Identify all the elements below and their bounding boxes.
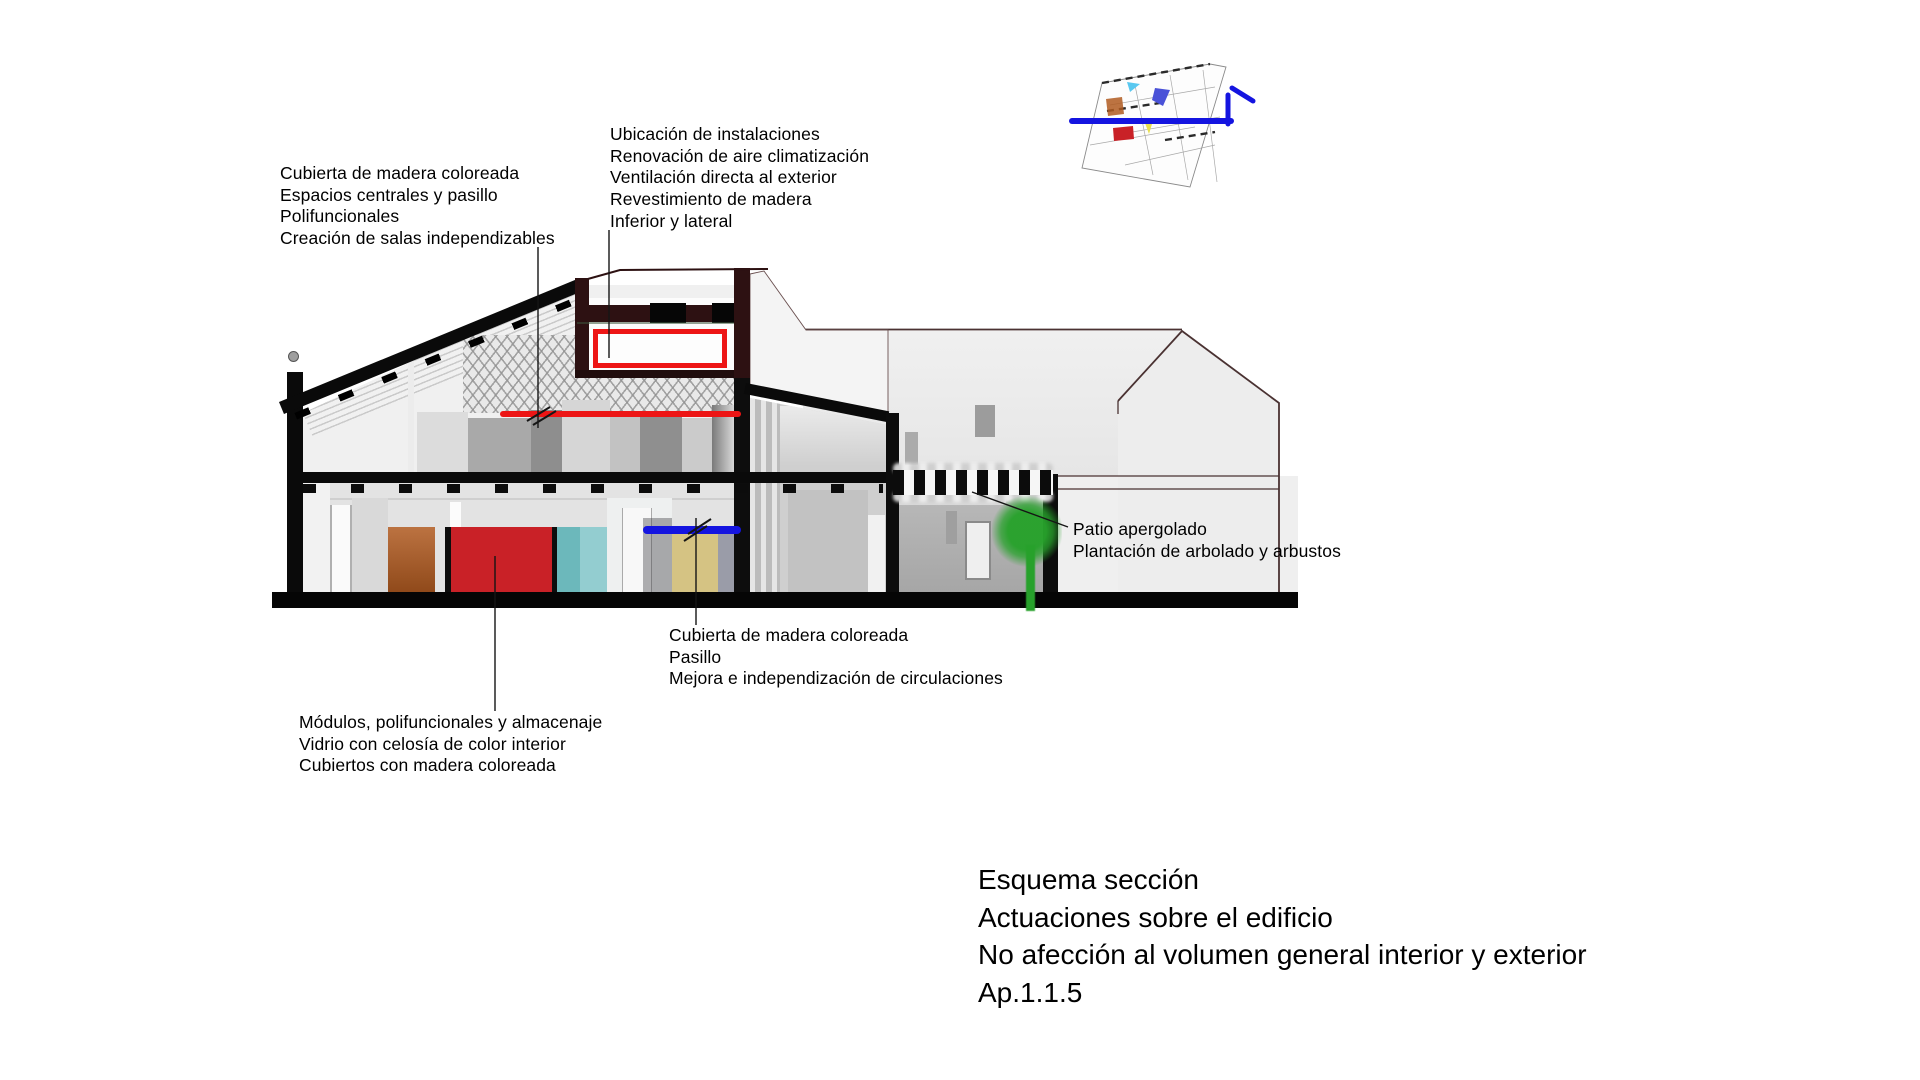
floor-slab <box>287 472 899 483</box>
patio-window <box>965 521 991 580</box>
joist-dashes <box>303 484 883 493</box>
module-teal-light <box>580 527 607 592</box>
clerestory-left-post <box>575 278 589 378</box>
door <box>450 502 461 528</box>
annotation-line: Ventilación directa al exterior <box>610 167 869 189</box>
wall-panel <box>352 498 388 592</box>
annotation-line: Módulos, polifuncionales y almacenaje <box>299 712 602 734</box>
finial <box>288 351 299 362</box>
module-red <box>451 527 552 592</box>
clerestory-sill <box>575 370 748 378</box>
door <box>330 505 352 592</box>
mid-wing-wall <box>886 413 899 600</box>
section-drawing: Cubierta de madera coloreada Espacios ce… <box>0 0 1920 1080</box>
pergola-band <box>893 470 1053 495</box>
title-line: Esquema sección <box>978 861 1587 899</box>
rear-window <box>975 405 995 437</box>
title-line: Ap.1.1.5 <box>978 974 1587 1012</box>
annotation-line: Polifuncionales <box>280 206 555 228</box>
annotation-line: Creación de salas independizables <box>280 228 555 250</box>
title-line: No afección al volumen general interior … <box>978 936 1587 974</box>
title-line: Actuaciones sobre el edificio <box>978 899 1587 937</box>
wall-panel <box>303 483 330 592</box>
annotation-installations: Ubicación de instalaciones Renovación de… <box>610 124 869 233</box>
blue-highlight-line <box>643 526 741 534</box>
red-highlight-line <box>500 411 741 417</box>
mid-building-interior <box>750 396 887 592</box>
annotation-line: Plantación de arbolado y arbustos <box>1073 541 1341 563</box>
annotation-patio: Patio apergolado Plantación de arbolado … <box>1073 519 1341 562</box>
annotation-line: Cubiertos con madera coloreada <box>299 755 602 777</box>
annotation-line: Patio apergolado <box>1073 519 1341 541</box>
plan-arrow <box>1232 88 1253 101</box>
module-teal <box>557 527 580 592</box>
annotation-line: Ubicación de instalaciones <box>610 124 869 146</box>
pilaster-strip <box>750 396 780 592</box>
rear-window <box>905 432 918 465</box>
clerestory-right-post <box>734 268 750 378</box>
annotation-roof-left: Cubierta de madera coloreada Espacios ce… <box>280 163 555 250</box>
annotation-modules: Módulos, polifuncionales y almacenaje Vi… <box>299 712 602 777</box>
annotation-line: Mejora e independización de circulacione… <box>669 668 1003 690</box>
annotation-corridor: Cubierta de madera coloreada Pasillo Mej… <box>669 625 1003 690</box>
red-highlight-rectangle <box>593 329 727 368</box>
annotation-line: Espacios centrales y pasillo <box>280 185 555 207</box>
plan-patch-red <box>1113 126 1134 141</box>
module-orange <box>388 527 435 592</box>
tree-trunk <box>1026 545 1035 611</box>
plan-thumbnail <box>1065 45 1265 200</box>
annotation-line: Vidrio con celosía de color interior <box>299 734 602 756</box>
glass-line <box>577 322 748 324</box>
mid-door <box>868 515 885 592</box>
annotation-line: Pasillo <box>669 647 1003 669</box>
annotation-line: Inferior y lateral <box>610 211 869 233</box>
annotation-line: Renovación de aire climatización <box>610 146 869 168</box>
annotation-line: Revestimiento de madera <box>610 189 869 211</box>
plan-patch-orange <box>1106 97 1124 116</box>
patio-window <box>946 511 957 544</box>
annotation-line: Cubierta de madera coloreada <box>280 163 555 185</box>
wall-panel <box>788 490 868 592</box>
annotation-line: Cubierta de madera coloreada <box>669 625 1003 647</box>
ground-line <box>272 592 1298 608</box>
title-block: Esquema sección Actuaciones sobre el edi… <box>978 861 1587 1011</box>
beam-block <box>650 303 686 323</box>
module-yellow <box>672 533 718 592</box>
module-bluegray <box>718 527 734 592</box>
